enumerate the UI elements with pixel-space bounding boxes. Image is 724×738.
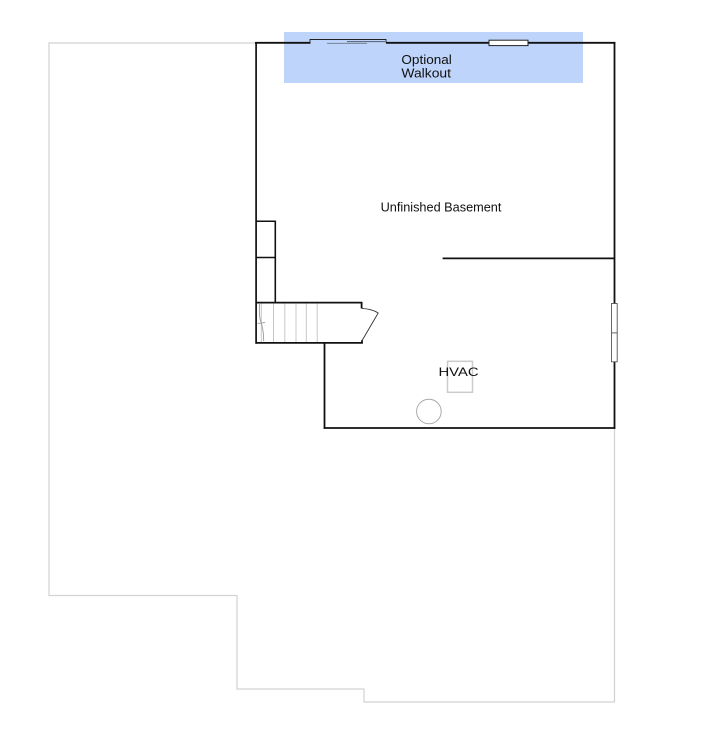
svg-text:HVAC: HVAC xyxy=(439,365,479,379)
svg-text:Walkout: Walkout xyxy=(401,65,451,80)
svg-text:Unfinished Basement: Unfinished Basement xyxy=(381,199,502,214)
